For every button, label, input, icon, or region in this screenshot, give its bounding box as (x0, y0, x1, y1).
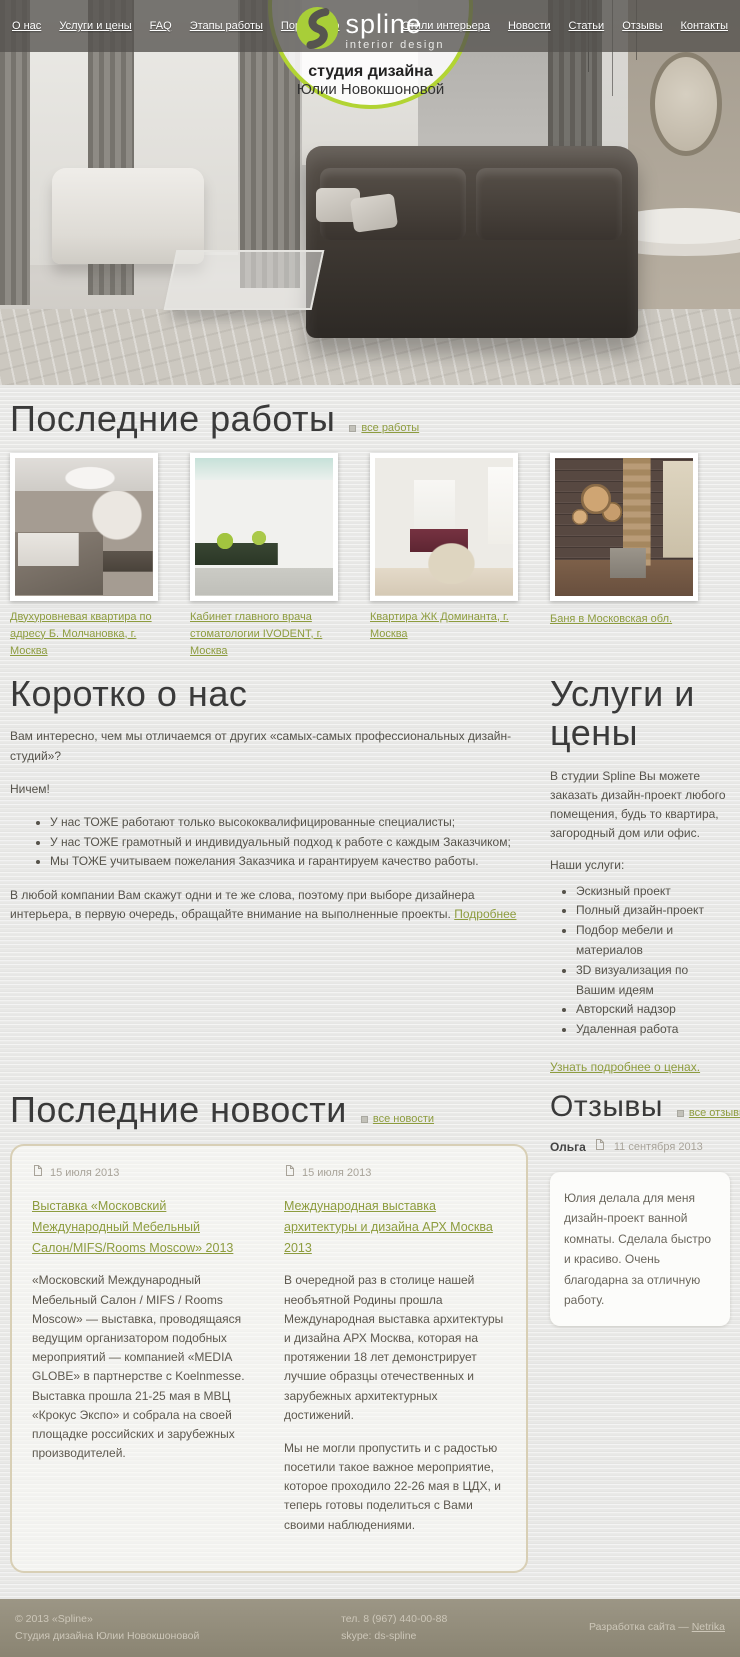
footer-copyright: © 2013 «Spline» (15, 1611, 199, 1628)
work-caption-link[interactable]: Баня в Московская обл. (550, 611, 672, 628)
footer: © 2013 «Spline» Студия дизайна Юлии Ново… (0, 1599, 740, 1657)
review-meta: Ольга 11 сентября 2013 (550, 1138, 730, 1156)
office-thumbnail-image (195, 458, 333, 596)
service-item: Эскизный проект (576, 882, 730, 902)
document-icon (594, 1138, 606, 1156)
work-card: Баня в Московская обл. (550, 453, 698, 660)
work-card: Двухуровневая квартира по адресу Б. Молч… (10, 453, 158, 660)
about-bullet: Мы ТОЖЕ учитываем пожелания Заказчика и … (50, 852, 528, 872)
square-bullet-icon (361, 1116, 368, 1123)
news-title-link[interactable]: Международная выставка архитектуры и диз… (284, 1196, 506, 1260)
dark-sofa-shape (306, 146, 638, 338)
logo-wordmark: spline (345, 11, 444, 38)
document-icon (284, 1164, 296, 1182)
footer-developer-block: Разработка сайта — Netrika (589, 1619, 725, 1636)
work-thumbnail[interactable] (190, 453, 338, 601)
news-paragraph: Мы не могли пропустить и с радостью посе… (284, 1439, 506, 1535)
service-item: Подбор мебели и материалов (576, 921, 730, 961)
nav-item-reviews[interactable]: Отзывы (622, 20, 662, 32)
about-bullet-list: У нас ТОЖЕ работают только высококвалифи… (50, 813, 528, 872)
footer-contacts-block: тел. 8 (967) 440-00-88 skype: ds-spline (341, 1611, 447, 1645)
about-services-section: Коротко о нас Вам интересно, чем мы отли… (0, 660, 740, 1076)
news-column: Последние новости все новости 15 июля 20… (10, 1090, 528, 1573)
reviews-title: Отзывы (550, 1090, 663, 1124)
wall-clock-shape (650, 52, 722, 156)
footer-studio: Студия дизайна Юлии Новокшоновой (15, 1628, 199, 1645)
about-paragraph-2: Ничем! (10, 780, 528, 799)
nav-item-about[interactable]: О нас (12, 20, 41, 32)
nav-left-group: О нас Услуги и цены FAQ Этапы работы Пор… (12, 20, 339, 32)
all-news-link[interactable]: все новости (361, 1113, 434, 1125)
about-paragraph-3: В любой компании Вам скажут одни и те же… (10, 886, 528, 924)
work-thumbnail[interactable] (10, 453, 158, 601)
work-thumbnail[interactable] (370, 453, 518, 601)
hero-image: студия дизайна Юлии Новокшоновой О нас У… (0, 0, 740, 385)
logo-text: spline interior design (345, 11, 444, 51)
all-works-link[interactable]: все работы (349, 422, 419, 434)
prices-link[interactable]: Узнать подробнее о ценах. (550, 1060, 700, 1074)
services-list: Эскизный проект Полный дизайн-проект Под… (576, 882, 730, 1040)
review-text: Юлия делала для меня дизайн-проект ванно… (564, 1188, 716, 1310)
services-column: Услуги и цены В студии Spline Вы можете … (550, 674, 730, 1076)
nav-item-faq[interactable]: FAQ (150, 20, 172, 32)
main-nav: О нас Услуги и цены FAQ Этапы работы Пор… (0, 0, 740, 52)
works-title: Последние работы (10, 399, 335, 439)
news-reviews-section: Последние новости все новости 15 июля 20… (0, 1076, 740, 1573)
service-item: 3D визуализация по Вашим идеям (576, 961, 730, 1001)
all-reviews-link[interactable]: все отзывы (677, 1107, 740, 1119)
services-title: Услуги и цены (550, 674, 730, 753)
reviews-column: Отзывы все отзывы Ольга 11 сентября 2013… (550, 1090, 730, 1573)
services-intro: В студии Spline Вы можете заказать дизай… (550, 767, 730, 844)
service-item: Полный дизайн-проект (576, 901, 730, 921)
badge-line1: студия дизайна (272, 63, 469, 81)
footer-copyright-block: © 2013 «Spline» Студия дизайна Юлии Ново… (15, 1611, 199, 1645)
news-title-link[interactable]: Выставка «Московский Международный Мебел… (32, 1196, 254, 1260)
square-bullet-icon (677, 1110, 684, 1117)
badge-line2: Юлии Новокшоновой (272, 81, 469, 98)
work-thumbnail[interactable] (550, 453, 698, 601)
about-more-link[interactable]: Подробнее (454, 907, 516, 921)
review-date: 11 сентября 2013 (614, 1141, 703, 1153)
pillow-shape (350, 193, 398, 233)
about-title: Коротко о нас (10, 674, 247, 714)
about-paragraph-3-text: В любой компании Вам скажут одни и те же… (10, 888, 475, 921)
spline-logo-icon (295, 6, 339, 55)
footer-phone: тел. 8 (967) 440-00-88 (341, 1611, 447, 1628)
about-paragraph-1: Вам интересно, чем мы отличаемся от друг… (10, 727, 528, 765)
about-bullet: У нас ТОЖЕ грамотный и индивидуальный по… (50, 833, 528, 853)
about-bullet: У нас ТОЖЕ работают только высококвалифи… (50, 813, 528, 833)
footer-developer-label: Разработка сайта — (589, 1621, 692, 1633)
work-caption-link[interactable]: Кабинет главного врача стоматологии IVOD… (190, 609, 338, 660)
about-column: Коротко о нас Вам интересно, чем мы отли… (10, 674, 528, 1076)
nav-item-services[interactable]: Услуги и цены (59, 20, 131, 32)
news-item: 15 июля 2013 Выставка «Московский Междун… (32, 1164, 254, 1549)
work-caption-link[interactable]: Квартира ЖК Доминанта, г. Москва (370, 609, 518, 643)
nav-right-group: Стили интерьера Новости Статьи Отзывы Ко… (402, 20, 728, 32)
work-card: Кабинет главного врача стоматологии IVOD… (190, 453, 338, 660)
document-icon (32, 1164, 44, 1182)
work-caption-link[interactable]: Двухуровневая квартира по адресу Б. Молч… (10, 609, 158, 660)
nav-item-articles[interactable]: Статьи (569, 20, 605, 32)
square-bullet-icon (349, 425, 356, 432)
works-cards: Двухуровневая квартира по адресу Б. Молч… (10, 453, 730, 660)
apartment-thumbnail-image (375, 458, 513, 596)
nav-item-news[interactable]: Новости (508, 20, 551, 32)
nav-item-stages[interactable]: Этапы работы (190, 20, 263, 32)
footer-skype: skype: ds-spline (341, 1628, 447, 1645)
bedroom-thumbnail-image (15, 458, 153, 596)
logo-tagline: interior design (345, 39, 444, 51)
latest-works-section: Последние работы все работы Двухуровнева… (0, 385, 740, 660)
work-card: Квартира ЖК Доминанта, г. Москва (370, 453, 518, 660)
service-item: Удаленная работа (576, 1020, 730, 1040)
review-bubble: Юлия делала для меня дизайн-проект ванно… (550, 1172, 730, 1326)
news-item: 15 июля 2013 Международная выставка архи… (284, 1164, 506, 1549)
spline-logo[interactable]: spline interior design (295, 6, 444, 55)
news-date: 15 июля 2013 (302, 1167, 371, 1179)
news-paragraph: «Московский Международный Мебельный Сало… (32, 1271, 254, 1463)
services-list-label: Наши услуги: (550, 858, 730, 872)
service-item: Авторский надзор (576, 1000, 730, 1020)
sofa-cushion-shape (476, 168, 622, 240)
news-date: 15 июля 2013 (50, 1167, 119, 1179)
news-title: Последние новости (10, 1090, 347, 1130)
sauna-thumbnail-image (555, 458, 693, 596)
coffee-table-shape (164, 250, 325, 310)
news-box: 15 июля 2013 Выставка «Московский Междун… (10, 1144, 528, 1573)
news-paragraph: В очередной раз в столице нашей необъятн… (284, 1271, 506, 1425)
review-author: Ольга (550, 1140, 586, 1154)
nav-item-contacts[interactable]: Контакты (680, 20, 728, 32)
developer-link[interactable]: Netrika (692, 1621, 725, 1633)
